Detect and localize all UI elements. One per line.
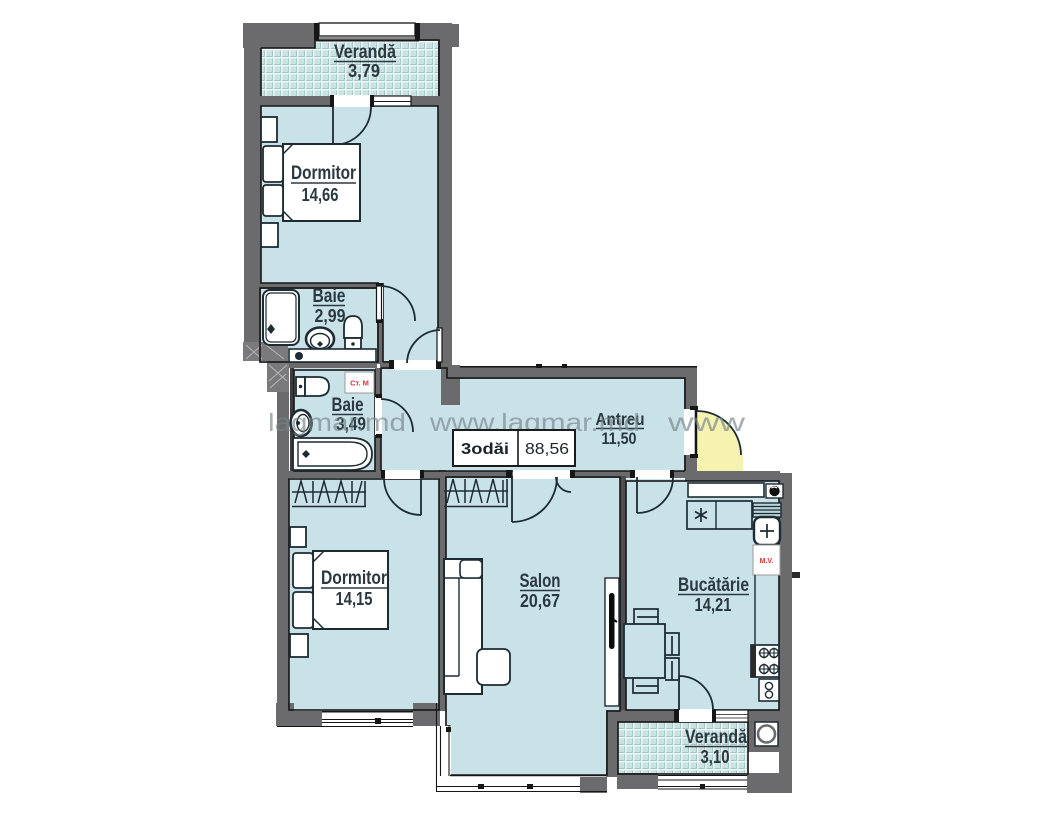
svg-text:3odăi: 3odăi bbox=[461, 441, 509, 458]
svg-text:M.V.: M.V. bbox=[760, 558, 774, 565]
svg-text:Dormitor: Dormitor bbox=[291, 163, 356, 184]
svg-text:Verandă: Verandă bbox=[685, 727, 747, 748]
svg-text:20,67: 20,67 bbox=[520, 591, 560, 611]
svg-text:Bucătărie: Bucătărie bbox=[678, 575, 749, 596]
svg-text:14,66: 14,66 bbox=[302, 185, 339, 205]
svg-text:14,21: 14,21 bbox=[695, 595, 732, 615]
svg-text:14,15: 14,15 bbox=[336, 589, 373, 609]
svg-text:2,99: 2,99 bbox=[315, 306, 346, 326]
svg-text:lagmar.md: lagmar.md bbox=[268, 409, 406, 437]
svg-text:Baie: Baie bbox=[313, 286, 346, 307]
svg-text:Cт. M: Cт. M bbox=[350, 379, 369, 388]
svg-text:88,56: 88,56 bbox=[525, 441, 569, 458]
svg-text:3,79: 3,79 bbox=[348, 61, 380, 81]
svg-text:Dormitor: Dormitor bbox=[321, 568, 387, 589]
svg-text:Salon: Salon bbox=[520, 571, 561, 592]
svg-text:www: www bbox=[667, 409, 747, 437]
svg-text:Verandă: Verandă bbox=[334, 42, 396, 63]
svg-text:3,10: 3,10 bbox=[701, 747, 730, 767]
